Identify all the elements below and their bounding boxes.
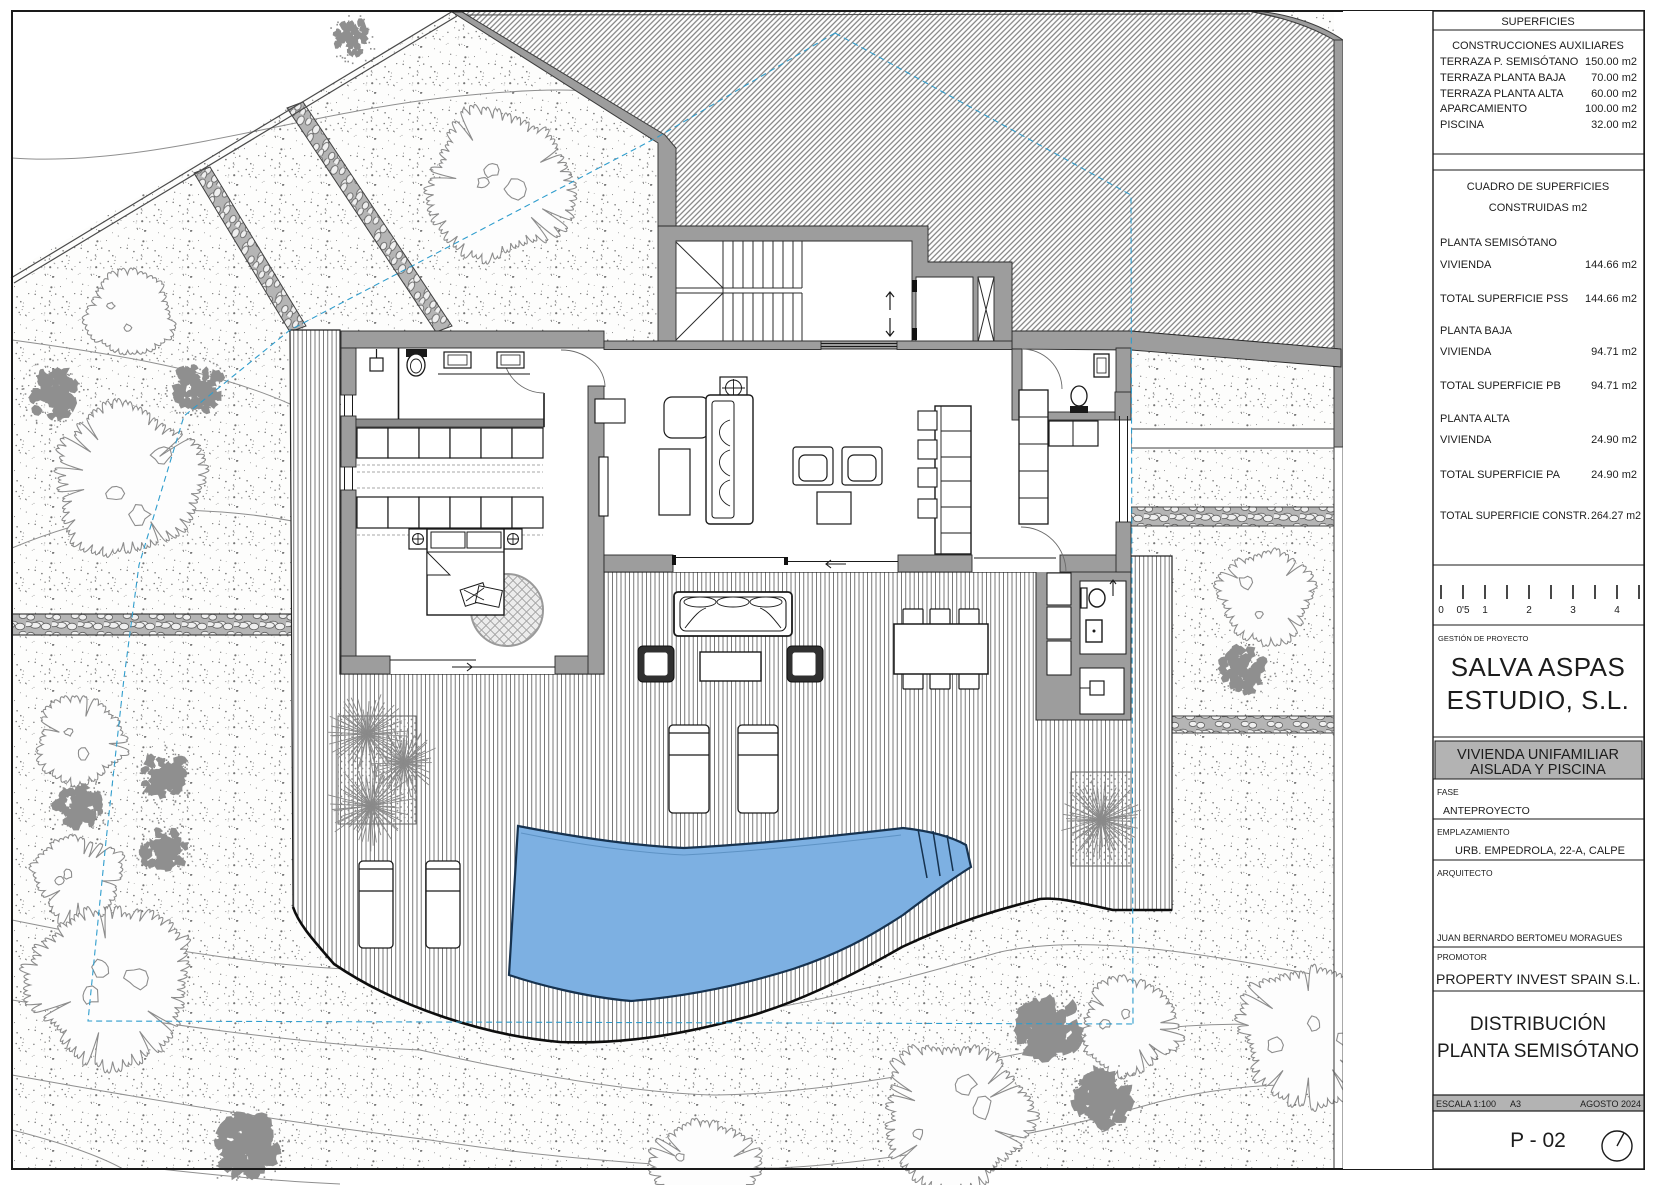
svg-text:24.90 m2: 24.90 m2 bbox=[1591, 434, 1637, 446]
svg-text:ARQUITECTO: ARQUITECTO bbox=[1437, 868, 1493, 878]
svg-text:100.00 m2: 100.00 m2 bbox=[1585, 103, 1637, 115]
svg-text:ESCALA 1:100: ESCALA 1:100 bbox=[1436, 1099, 1496, 1109]
svg-text:P - 02: P - 02 bbox=[1510, 1129, 1566, 1152]
svg-text:70.00 m2: 70.00 m2 bbox=[1591, 72, 1637, 84]
svg-text:AISLADA Y PISCINA: AISLADA Y PISCINA bbox=[1470, 762, 1606, 778]
svg-text:TOTAL SUPERFICIE CONSTR.: TOTAL SUPERFICIE CONSTR. bbox=[1440, 510, 1590, 522]
svg-text:PLANTA BAJA: PLANTA BAJA bbox=[1440, 325, 1513, 337]
svg-text:264.27 m2: 264.27 m2 bbox=[1591, 510, 1641, 522]
svg-text:JUAN BERNARDO BERTOMEU MORAGUE: JUAN BERNARDO BERTOMEU MORAGUES bbox=[1437, 933, 1622, 943]
svg-text:TERRAZA PLANTA BAJA: TERRAZA PLANTA BAJA bbox=[1440, 72, 1566, 84]
svg-text:TOTAL SUPERFICIE PA: TOTAL SUPERFICIE PA bbox=[1440, 469, 1561, 481]
svg-text:CONSTRUIDAS m2: CONSTRUIDAS m2 bbox=[1489, 202, 1587, 214]
svg-text:CONSTRUCCIONES AUXILIARES: CONSTRUCCIONES AUXILIARES bbox=[1452, 40, 1624, 52]
svg-text:FASE: FASE bbox=[1437, 787, 1459, 797]
svg-text:32.00 m2: 32.00 m2 bbox=[1591, 119, 1637, 131]
svg-text:4: 4 bbox=[1614, 605, 1620, 616]
svg-text:TERRAZA P. SEMISÓTANO: TERRAZA P. SEMISÓTANO bbox=[1440, 55, 1579, 68]
svg-text:VIVIENDA: VIVIENDA bbox=[1440, 346, 1492, 358]
svg-text:94.71 m2: 94.71 m2 bbox=[1591, 380, 1637, 392]
svg-text:24.90 m2: 24.90 m2 bbox=[1591, 469, 1637, 481]
svg-text:EMPLAZAMIENTO: EMPLAZAMIENTO bbox=[1437, 827, 1510, 837]
svg-text:A3: A3 bbox=[1510, 1099, 1521, 1109]
svg-text:60.00 m2: 60.00 m2 bbox=[1591, 88, 1637, 100]
svg-text:ANTEPROYECTO: ANTEPROYECTO bbox=[1443, 805, 1530, 817]
svg-text:VIVIENDA: VIVIENDA bbox=[1440, 259, 1492, 271]
svg-text:150.00 m2: 150.00 m2 bbox=[1585, 56, 1637, 68]
svg-text:PROMOTOR: PROMOTOR bbox=[1437, 952, 1487, 962]
svg-text:AGOSTO 2024: AGOSTO 2024 bbox=[1580, 1099, 1641, 1109]
svg-text:VIVIENDA UNIFAMILIAR: VIVIENDA UNIFAMILIAR bbox=[1457, 747, 1619, 763]
svg-text:PLANTA SEMISÓTANO: PLANTA SEMISÓTANO bbox=[1437, 1040, 1639, 1062]
svg-text:VIVIENDA: VIVIENDA bbox=[1440, 434, 1492, 446]
svg-text:3: 3 bbox=[1570, 605, 1576, 616]
svg-text:PLANTA SEMISÓTANO: PLANTA SEMISÓTANO bbox=[1440, 236, 1557, 249]
svg-text:2: 2 bbox=[1526, 605, 1532, 616]
svg-text:TOTAL SUPERFICIE PB: TOTAL SUPERFICIE PB bbox=[1440, 380, 1561, 392]
svg-text:TERRAZA PLANTA ALTA: TERRAZA PLANTA ALTA bbox=[1440, 88, 1564, 100]
svg-text:APARCAMIENTO: APARCAMIENTO bbox=[1440, 103, 1527, 115]
svg-text:0: 0 bbox=[1438, 605, 1444, 616]
svg-text:PLANTA ALTA: PLANTA ALTA bbox=[1440, 413, 1510, 425]
svg-text:SUPERFICIES: SUPERFICIES bbox=[1501, 16, 1574, 28]
svg-text:TOTAL SUPERFICIE PSS: TOTAL SUPERFICIE PSS bbox=[1440, 293, 1568, 305]
svg-text:CUADRO DE SUPERFICIES: CUADRO DE SUPERFICIES bbox=[1467, 181, 1609, 193]
svg-text:94.71 m2: 94.71 m2 bbox=[1591, 346, 1637, 358]
svg-text:GESTIÓN DE PROYECTO: GESTIÓN DE PROYECTO bbox=[1438, 634, 1528, 643]
svg-text:0'5: 0'5 bbox=[1456, 605, 1469, 616]
svg-text:URB. EMPEDROLA, 22-A, CALPE: URB. EMPEDROLA, 22-A, CALPE bbox=[1455, 845, 1625, 857]
svg-text:ESTUDIO, S.L.: ESTUDIO, S.L. bbox=[1447, 685, 1630, 715]
svg-text:PROPERTY INVEST SPAIN S.L.: PROPERTY INVEST SPAIN S.L. bbox=[1436, 971, 1640, 987]
svg-text:SALVA ASPAS: SALVA ASPAS bbox=[1451, 652, 1626, 682]
svg-text:144.66 m2: 144.66 m2 bbox=[1585, 259, 1637, 271]
svg-text:DISTRIBUCIÓN: DISTRIBUCIÓN bbox=[1470, 1013, 1606, 1035]
svg-text:PISCINA: PISCINA bbox=[1440, 119, 1485, 131]
svg-text:144.66 m2: 144.66 m2 bbox=[1585, 293, 1637, 305]
svg-text:1: 1 bbox=[1482, 605, 1488, 616]
